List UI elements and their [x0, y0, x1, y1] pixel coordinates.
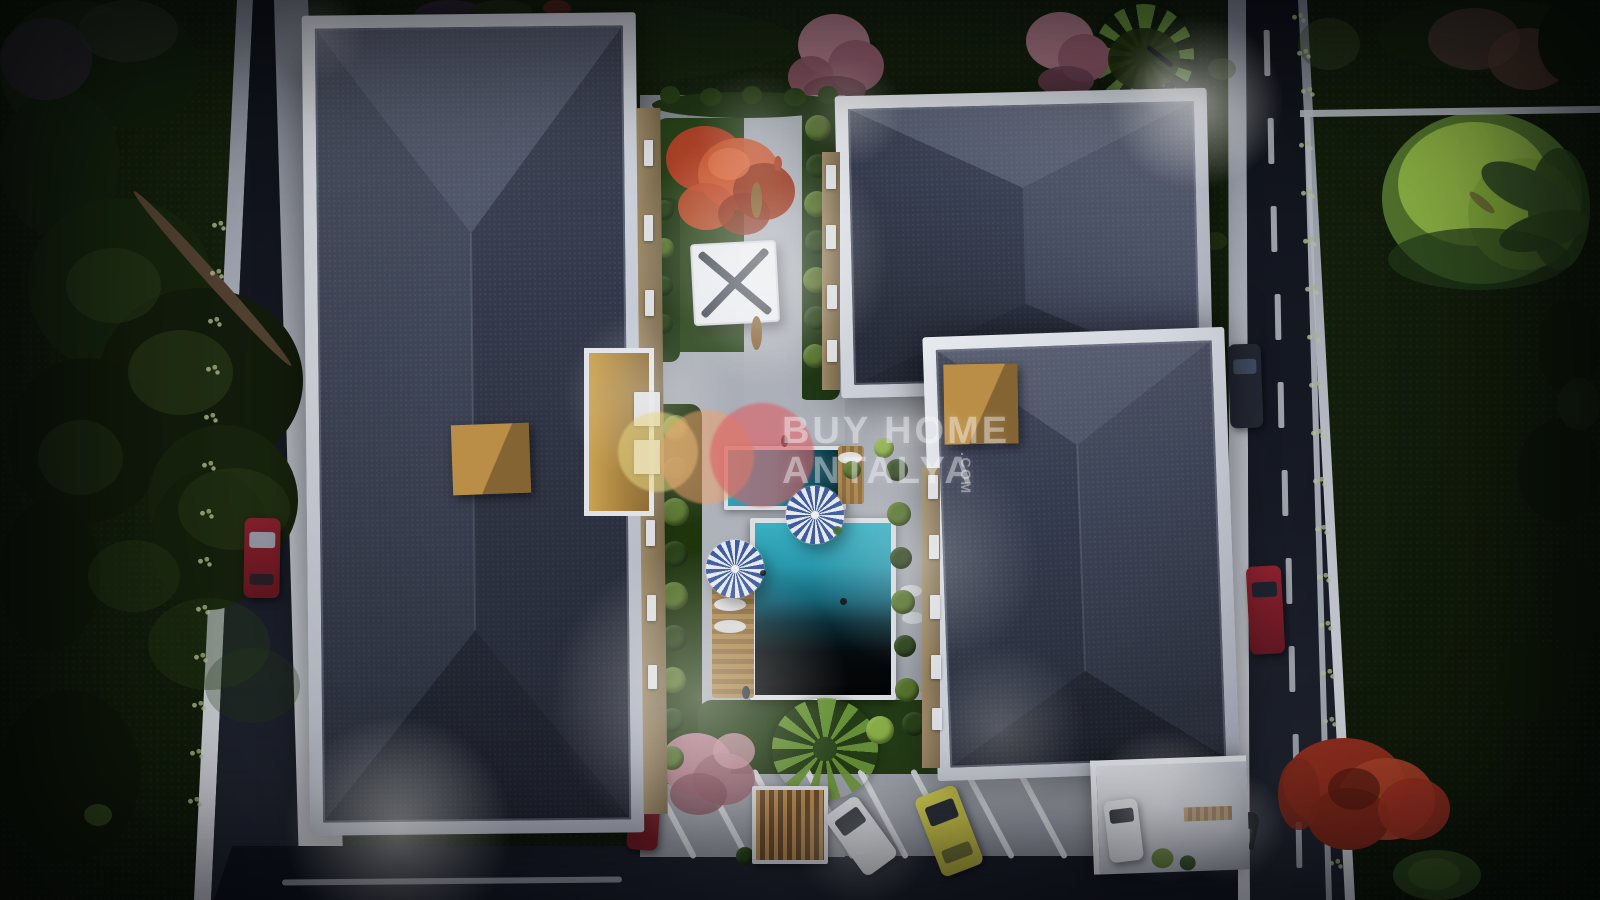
foliage-blob	[1518, 420, 1600, 522]
car-windshield	[834, 806, 867, 837]
foliage-blob	[774, 156, 782, 171]
window-frame	[647, 595, 656, 621]
road-center-dash	[1285, 558, 1292, 604]
bush	[662, 541, 688, 567]
watermark-line-2: ANTALYA	[782, 450, 975, 493]
foliage-blob	[660, 86, 680, 104]
road-center-dash	[1267, 118, 1274, 164]
road-center-dash	[1271, 206, 1278, 252]
foliage-blob	[760, 570, 766, 576]
foliage-blob	[0, 500, 100, 650]
foliage-blob	[1388, 228, 1570, 290]
foliage-blob	[1408, 858, 1460, 890]
flower-cluster	[202, 412, 220, 425]
entrance-trellis	[752, 786, 828, 864]
car-windshield	[924, 798, 959, 827]
flower-cluster	[1309, 428, 1327, 441]
road-center-dash	[1282, 470, 1289, 516]
foliage-blob	[1378, 778, 1450, 840]
flower-cluster	[198, 508, 216, 521]
flower-cluster	[1313, 524, 1331, 537]
flower-cluster	[200, 460, 218, 473]
window-frame	[827, 340, 837, 362]
flower-cluster	[196, 556, 214, 569]
foliage-blob	[833, 526, 842, 535]
flower-cluster	[186, 796, 204, 809]
garden-canopy	[690, 240, 780, 326]
car-windshield	[1233, 359, 1257, 375]
flower-cluster	[192, 652, 210, 665]
aerial-site-render: BUY HOME ANTALYA .COM	[0, 0, 1600, 900]
window-frame	[644, 215, 653, 241]
main-pool	[750, 518, 896, 700]
car-windshield	[1109, 807, 1135, 824]
bush	[661, 498, 689, 526]
foliage-blob	[714, 620, 746, 633]
bush	[805, 115, 831, 141]
watermark-line-1: BUY HOME	[782, 410, 1010, 453]
foliage-blob	[840, 598, 847, 605]
flower-cluster	[1305, 332, 1323, 345]
foliage-blob	[742, 686, 750, 699]
carport-bush	[1151, 848, 1174, 869]
road-center-dash	[1264, 30, 1271, 76]
foliage-blob	[88, 540, 180, 612]
window-frame	[930, 595, 940, 619]
foliage-blob	[1558, 378, 1600, 430]
flower-cluster	[1321, 716, 1339, 729]
foliage-blob	[1208, 58, 1236, 80]
flower-cluster	[1327, 858, 1345, 871]
foliage-blob	[205, 648, 300, 723]
pool-parasol-west	[706, 540, 764, 598]
bush	[890, 547, 912, 569]
watermark-suffix: .COM	[958, 452, 974, 495]
foliage-blob	[1498, 640, 1570, 722]
window-frame	[646, 520, 655, 546]
window-frame	[648, 665, 657, 689]
flower-cluster	[1317, 620, 1335, 633]
flower-cluster	[1299, 86, 1317, 99]
foliage-blob	[78, 0, 178, 62]
bush	[895, 678, 919, 702]
window-frame	[644, 140, 653, 166]
road-center-dash	[1274, 294, 1281, 340]
car-white-carport	[1103, 798, 1144, 864]
foliage-blob	[1328, 768, 1380, 810]
foliage-blob	[902, 612, 924, 624]
flower-cluster	[1290, 12, 1308, 25]
foliage-blob	[751, 316, 762, 350]
bush	[866, 716, 894, 744]
flower-cluster	[204, 364, 222, 377]
carport-wood-pergola	[1184, 806, 1232, 822]
window-frame	[932, 708, 942, 730]
foliage-blob	[670, 773, 727, 815]
flower-cluster	[1307, 380, 1325, 393]
foliage-blob	[1108, 28, 1180, 90]
bush	[894, 635, 916, 657]
flower-cluster	[210, 220, 228, 233]
foliage-blob	[708, 148, 750, 180]
roof-access-box-left	[451, 423, 531, 496]
flower-cluster	[1315, 572, 1333, 585]
flower-cluster	[206, 316, 224, 329]
car-red-right-road	[1246, 565, 1286, 655]
window-frame	[827, 285, 837, 309]
window-frame	[826, 165, 836, 189]
window-frame	[929, 535, 939, 559]
window-frame	[931, 655, 941, 679]
flower-cluster	[1301, 236, 1319, 249]
foliage-blob	[0, 690, 140, 860]
car-rear-window	[250, 574, 274, 585]
flower-cluster	[1311, 476, 1329, 489]
foliage-blob	[84, 804, 112, 826]
window-frame	[826, 225, 836, 249]
flower-cluster	[194, 604, 212, 617]
flower-cluster	[1303, 284, 1321, 297]
flower-cluster	[1319, 668, 1337, 681]
flower-cluster	[1297, 140, 1315, 153]
foliage-blob	[742, 86, 762, 104]
foliage-blob	[713, 733, 755, 769]
carport-bush	[1179, 855, 1196, 871]
foliage-blob	[1538, 0, 1600, 82]
foliage-blob	[751, 182, 762, 218]
foliage-blob	[38, 420, 123, 495]
palm-tree-courtyard	[772, 698, 878, 800]
car-red-left-road	[243, 518, 280, 599]
foliage-blob	[784, 88, 806, 106]
flower-cluster	[208, 268, 226, 281]
car-rear-window	[941, 841, 974, 865]
road-center-dash	[1289, 646, 1296, 692]
flower-cluster	[188, 748, 206, 761]
car-dark-right-road	[1228, 343, 1264, 428]
foliage-blob	[714, 598, 746, 611]
window-frame	[645, 290, 654, 316]
foliage-blob	[1298, 18, 1360, 70]
flower-cluster	[1299, 188, 1317, 201]
foliage-blob	[66, 248, 161, 323]
foliage-blob	[1538, 300, 1600, 392]
foliage-blob	[1278, 758, 1320, 830]
foliage-blob	[718, 193, 770, 235]
carport-terrace	[1090, 755, 1250, 874]
car-windshield	[249, 532, 275, 548]
flower-cluster	[190, 700, 208, 713]
foliage-blob	[700, 88, 722, 106]
bush	[887, 502, 911, 526]
car-windshield	[1252, 581, 1278, 597]
bush	[891, 590, 915, 614]
foliage-blob	[1552, 560, 1600, 652]
flower-cluster	[1295, 48, 1313, 61]
